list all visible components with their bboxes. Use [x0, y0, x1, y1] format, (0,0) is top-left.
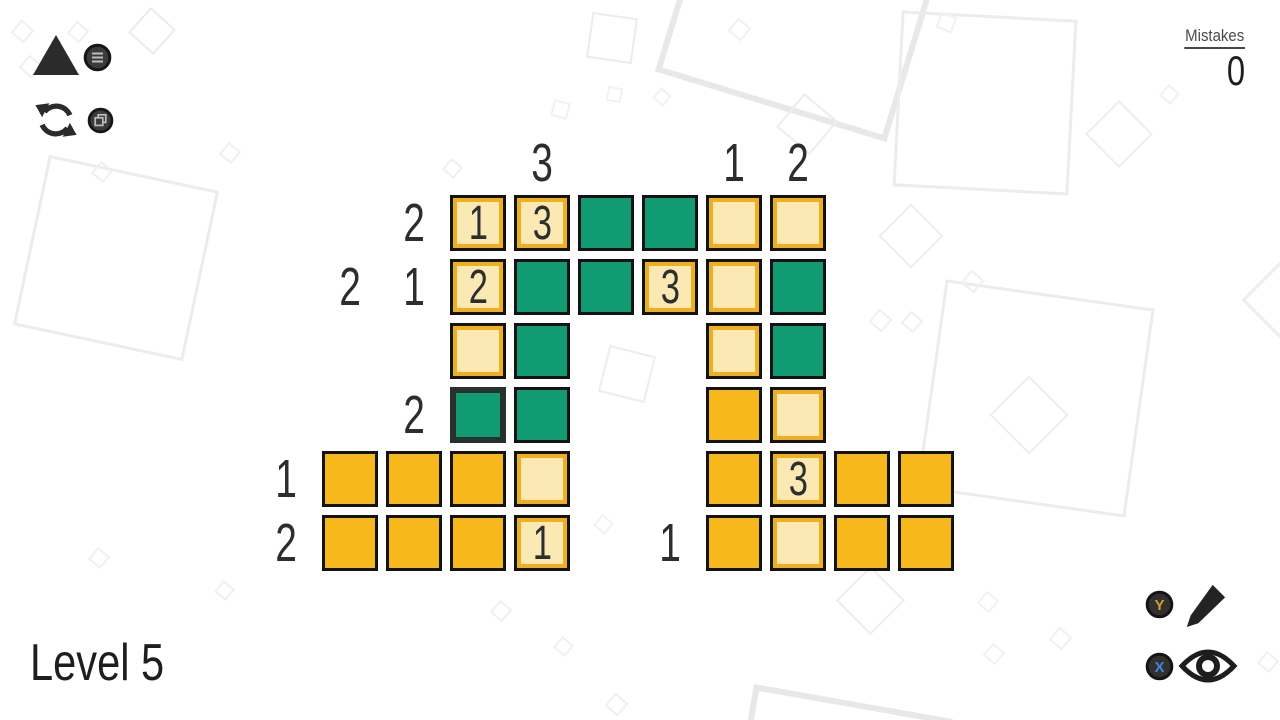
game-screen: Mistakes 0 Level 5 3122212121132331 Y X	[0, 0, 1280, 720]
board-cell[interactable]	[514, 323, 570, 379]
x-button-letter: X	[1154, 659, 1164, 676]
board-cell[interactable]: 3	[770, 451, 826, 507]
mistakes-panel: Mistakes 0	[1176, 26, 1245, 93]
x-controller-button: X	[1145, 652, 1174, 681]
decor-square	[552, 635, 573, 656]
board-cell[interactable]	[386, 515, 442, 571]
board-cell[interactable]: 3	[642, 259, 698, 315]
row-label: 2	[386, 387, 442, 443]
decor-square	[490, 600, 513, 623]
board-cell[interactable]	[898, 451, 954, 507]
board-cell[interactable]	[770, 387, 826, 443]
cell-number: 3	[788, 452, 807, 507]
decor-square	[213, 579, 234, 600]
row-label: 1	[258, 451, 314, 507]
board-cell[interactable]	[706, 387, 762, 443]
column-header: 1	[706, 135, 762, 191]
decor-square	[983, 643, 1006, 666]
board-cell[interactable]	[770, 515, 826, 571]
board-cell[interactable]	[450, 515, 506, 571]
cell-number: 3	[532, 196, 551, 251]
decor-square	[550, 99, 571, 120]
board-cell[interactable]	[578, 195, 634, 251]
decor-square	[441, 157, 462, 178]
board-cell[interactable]	[706, 259, 762, 315]
board-cell[interactable]	[514, 451, 570, 507]
decor-square	[1257, 651, 1280, 674]
y-button-letter: Y	[1154, 597, 1164, 614]
decor-square	[1241, 253, 1280, 346]
decor-square	[878, 203, 943, 268]
board-cell[interactable]	[642, 195, 698, 251]
row-label: 2	[386, 195, 442, 251]
restart-icon[interactable]	[33, 97, 79, 143]
board-cell[interactable]: 1	[450, 195, 506, 251]
column-header: 2	[770, 135, 826, 191]
board-cell[interactable]	[706, 323, 762, 379]
decor-square	[652, 87, 672, 107]
board-cell[interactable]	[706, 451, 762, 507]
board-cell[interactable]	[834, 515, 890, 571]
view-controller-button	[87, 107, 114, 134]
board-cell[interactable]	[322, 451, 378, 507]
eye-icon[interactable]	[1178, 645, 1238, 687]
board-cell[interactable]	[706, 515, 762, 571]
decor-square	[893, 11, 1078, 196]
y-controller-button: Y	[1145, 590, 1174, 619]
cell-number: 3	[660, 260, 679, 315]
board-cell-cursor[interactable]	[450, 387, 506, 443]
mistakes-label: Mistakes	[1184, 26, 1245, 49]
row-label: 2	[322, 259, 378, 315]
decor-square	[604, 692, 628, 716]
decor-square	[868, 308, 892, 332]
decor-square	[88, 547, 111, 570]
board-cell[interactable]	[450, 323, 506, 379]
decor-square	[128, 7, 176, 55]
decor-square	[13, 155, 219, 361]
decor-square	[835, 565, 904, 634]
decor-square	[219, 142, 242, 165]
decor-square	[719, 684, 953, 720]
decor-square	[1048, 626, 1072, 650]
cell-number: 1	[532, 516, 551, 571]
cell-number: 1	[468, 196, 487, 251]
menu-controller-button	[83, 43, 112, 72]
board-cell[interactable]	[578, 259, 634, 315]
decor-square	[1085, 100, 1153, 168]
row-label: 2	[258, 515, 314, 571]
board-cell[interactable]	[898, 515, 954, 571]
board-cell[interactable]: 2	[450, 259, 506, 315]
board-cell[interactable]	[322, 515, 378, 571]
board-cell[interactable]	[706, 195, 762, 251]
row-label: 1	[642, 515, 698, 571]
mistakes-count: 0	[1191, 49, 1245, 93]
decor-square	[10, 19, 34, 43]
board-cell[interactable]	[386, 451, 442, 507]
board-cell[interactable]	[514, 387, 570, 443]
decor-square	[605, 85, 622, 102]
decor-square	[977, 591, 1000, 614]
board-cell[interactable]	[770, 323, 826, 379]
row-label: 1	[386, 259, 442, 315]
decor-square	[592, 513, 613, 534]
decor-square	[598, 345, 656, 403]
board-cell[interactable]	[514, 259, 570, 315]
board-cell[interactable]	[450, 451, 506, 507]
level-title: Level 5	[30, 633, 164, 693]
board-cell[interactable]	[770, 259, 826, 315]
board-cell[interactable]: 3	[514, 195, 570, 251]
decor-square	[901, 311, 924, 334]
board-cell[interactable]	[770, 195, 826, 251]
board-cell[interactable]: 1	[514, 515, 570, 571]
pencil-icon[interactable]	[1182, 582, 1228, 628]
decor-square	[586, 12, 638, 64]
triangle-up-icon[interactable]	[33, 35, 79, 75]
column-header: 3	[514, 135, 570, 191]
cell-number: 2	[468, 260, 487, 315]
board-cell[interactable]	[834, 451, 890, 507]
